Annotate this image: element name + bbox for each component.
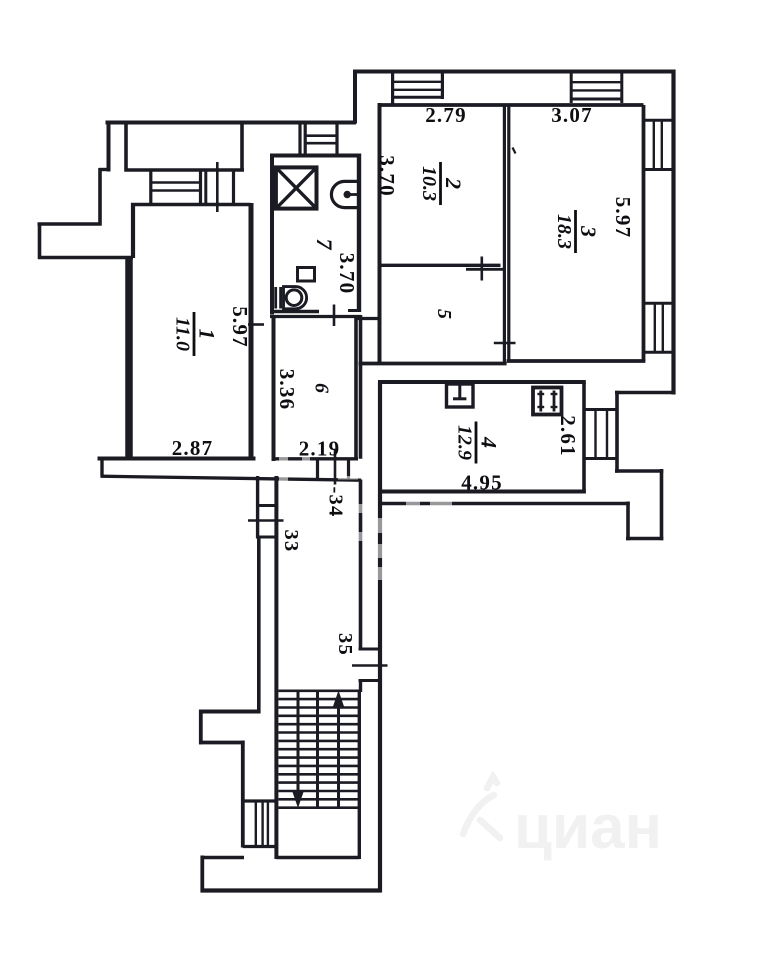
svg-text:3.36: 3.36 (275, 369, 299, 411)
svg-text:6: 6 (311, 383, 333, 393)
svg-text:2: 2 (441, 177, 466, 189)
svg-text:-34: -34 (325, 487, 347, 518)
svg-text:3: 3 (576, 225, 601, 237)
svg-text:5.97: 5.97 (611, 197, 635, 239)
svg-text:18.3: 18.3 (553, 214, 575, 249)
svg-text:2.87: 2.87 (172, 436, 214, 460)
svg-text:2.79: 2.79 (425, 103, 467, 127)
svg-text:7: 7 (312, 239, 337, 251)
svg-text:циан: циан (514, 793, 662, 862)
svg-text:5.97: 5.97 (228, 306, 252, 348)
svg-text:3.70: 3.70 (375, 155, 399, 197)
svg-text:3.07: 3.07 (551, 103, 593, 127)
svg-text:10.3: 10.3 (418, 166, 440, 201)
svg-text:4: 4 (477, 436, 502, 448)
svg-text:33: 33 (280, 530, 302, 553)
svg-text:4.95: 4.95 (461, 471, 503, 495)
svg-text:3.70: 3.70 (335, 253, 359, 295)
svg-text:2.61: 2.61 (556, 415, 580, 457)
svg-text:12.9: 12.9 (454, 425, 476, 460)
svg-text:35: 35 (334, 633, 356, 656)
svg-text:5: 5 (433, 309, 455, 319)
svg-text:11.0: 11.0 (172, 317, 194, 351)
svg-text:1: 1 (195, 329, 220, 340)
